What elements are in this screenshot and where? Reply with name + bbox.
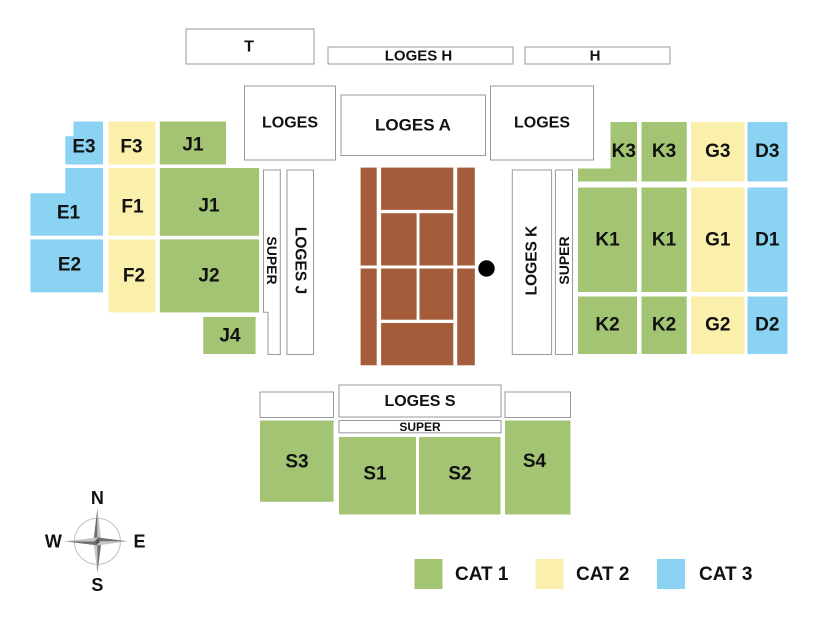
svg-text:T: T bbox=[244, 39, 254, 56]
svg-text:S3: S3 bbox=[285, 452, 308, 473]
svg-text:E2: E2 bbox=[58, 255, 81, 276]
svg-text:LOGES: LOGES bbox=[262, 115, 318, 132]
svg-text:LOGES K: LOGES K bbox=[524, 225, 541, 296]
svg-text:J1: J1 bbox=[182, 135, 204, 156]
svg-text:F2: F2 bbox=[123, 266, 145, 287]
svg-text:G2: G2 bbox=[705, 315, 730, 336]
svg-text:S1: S1 bbox=[363, 464, 387, 485]
svg-text:H: H bbox=[590, 48, 601, 65]
svg-text:LOGES S: LOGES S bbox=[384, 393, 455, 410]
svg-text:D2: D2 bbox=[755, 315, 779, 336]
svg-text:N: N bbox=[91, 488, 104, 508]
svg-text:K2: K2 bbox=[652, 315, 676, 336]
svg-text:F3: F3 bbox=[120, 137, 142, 158]
svg-text:K1: K1 bbox=[595, 230, 620, 251]
svg-text:S: S bbox=[91, 575, 103, 595]
svg-text:E3: E3 bbox=[72, 137, 95, 158]
svg-text:SUPER: SUPER bbox=[264, 236, 280, 284]
svg-text:SUPER: SUPER bbox=[399, 420, 441, 434]
svg-text:LOGES A: LOGES A bbox=[375, 116, 451, 135]
svg-text:D3: D3 bbox=[755, 141, 779, 162]
svg-text:LOGES: LOGES bbox=[514, 115, 570, 132]
svg-text:CAT 1: CAT 1 bbox=[455, 564, 509, 585]
svg-text:LOGES J: LOGES J bbox=[292, 227, 309, 294]
svg-text:E: E bbox=[133, 531, 145, 551]
svg-text:G3: G3 bbox=[705, 141, 730, 162]
svg-text:F1: F1 bbox=[121, 197, 144, 218]
svg-text:J1: J1 bbox=[198, 196, 220, 217]
svg-text:CAT 3: CAT 3 bbox=[699, 564, 752, 585]
svg-text:LOGES H: LOGES H bbox=[385, 48, 453, 65]
svg-text:D1: D1 bbox=[755, 230, 780, 251]
svg-text:J2: J2 bbox=[198, 266, 219, 287]
svg-text:K3: K3 bbox=[652, 141, 676, 162]
svg-text:S4: S4 bbox=[523, 451, 547, 472]
svg-text:G1: G1 bbox=[705, 230, 731, 251]
svg-text:E1: E1 bbox=[57, 203, 81, 224]
svg-text:K3: K3 bbox=[612, 141, 636, 162]
svg-text:SUPER: SUPER bbox=[556, 236, 572, 284]
svg-text:K2: K2 bbox=[595, 315, 619, 336]
svg-text:CAT 2: CAT 2 bbox=[576, 564, 629, 585]
svg-text:K1: K1 bbox=[652, 230, 677, 251]
svg-text:J4: J4 bbox=[219, 326, 241, 347]
svg-text:S2: S2 bbox=[448, 464, 471, 485]
svg-text:W: W bbox=[45, 531, 62, 551]
